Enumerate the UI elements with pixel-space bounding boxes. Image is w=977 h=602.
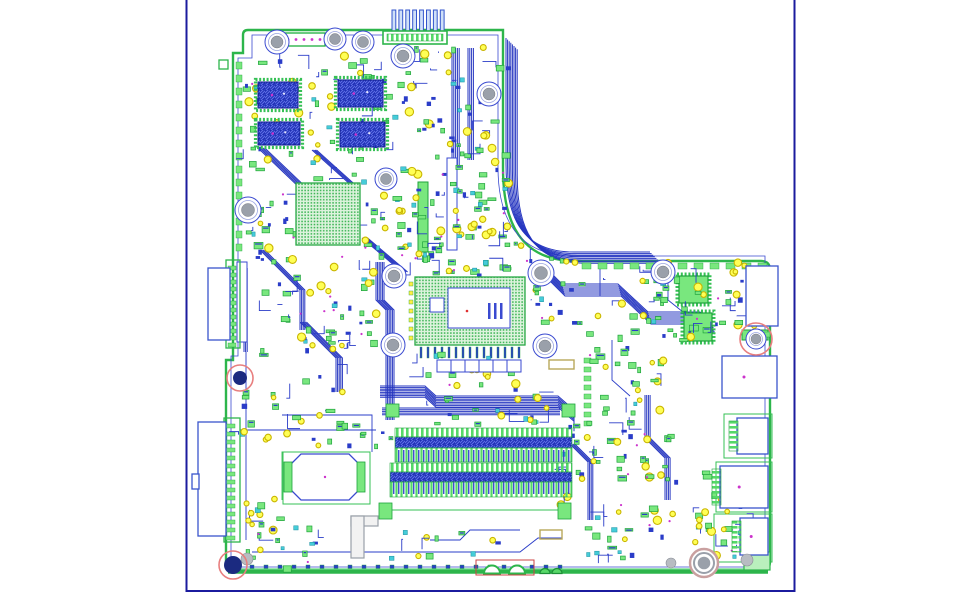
target-mounting-hole bbox=[690, 549, 718, 577]
pch-bga bbox=[296, 183, 360, 245]
io-port-right bbox=[722, 356, 777, 398]
ram-chip bbox=[338, 120, 388, 150]
mounting-hole bbox=[391, 44, 415, 68]
io-port-right bbox=[712, 466, 768, 508]
mounting-hole bbox=[528, 260, 554, 286]
top-fan-connector bbox=[383, 10, 447, 44]
mounting-hole bbox=[265, 30, 289, 54]
mounting-hole bbox=[375, 168, 397, 190]
io-port-left bbox=[208, 268, 230, 340]
pcb-viewer-viewport bbox=[0, 0, 977, 602]
mounting-hole bbox=[651, 260, 675, 284]
io-port-left bbox=[192, 474, 199, 489]
ram-chip bbox=[256, 120, 303, 148]
mounting-hole bbox=[235, 197, 261, 223]
io-port-left bbox=[198, 422, 226, 536]
mounting-hole bbox=[477, 82, 501, 106]
mounting-hole bbox=[382, 264, 406, 288]
mounting-hole bbox=[352, 31, 374, 53]
resistor-row bbox=[437, 360, 521, 372]
ram-chip bbox=[336, 78, 386, 110]
mounting-hole bbox=[381, 333, 405, 357]
io-port-right bbox=[732, 518, 768, 555]
pcb-layout-canvas[interactable] bbox=[0, 0, 977, 602]
ram-chip bbox=[256, 80, 301, 111]
mounting-hole bbox=[533, 334, 557, 358]
mounting-hole bbox=[324, 28, 346, 50]
io-port-right bbox=[746, 266, 778, 326]
io-port-right bbox=[729, 418, 768, 454]
mounting-hole bbox=[746, 329, 766, 349]
